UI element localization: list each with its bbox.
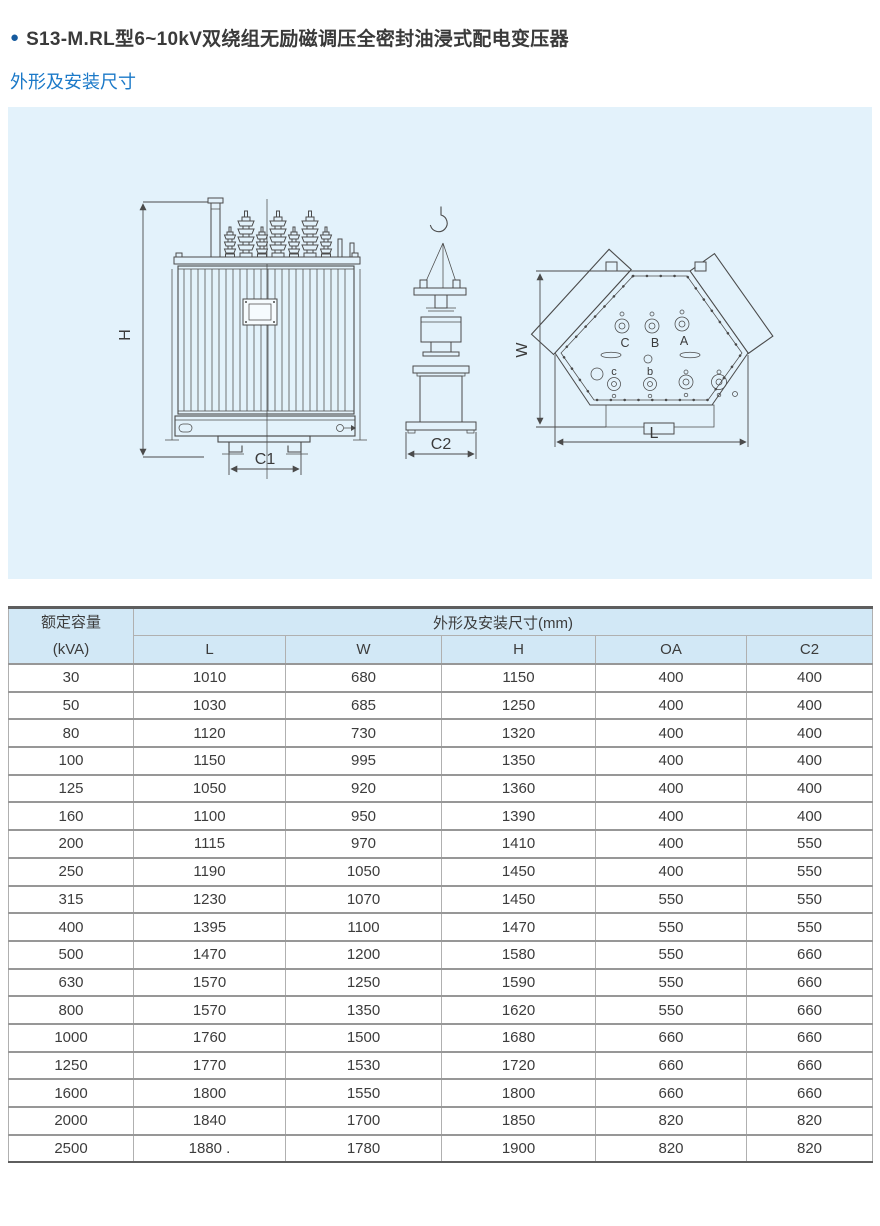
dimension-cell: 550 [596,886,747,914]
capacity-cell: 125 [9,775,134,803]
dimension-cell: 1150 [134,747,286,775]
dim-label-h: H [117,329,134,341]
dimension-cell: 1320 [442,719,596,747]
phase-label-b-lv: b [647,366,653,378]
col-header-c2: C2 [747,636,873,664]
table-row: 800157013501620550660 [9,996,873,1024]
dimension-cell: 820 [596,1107,747,1135]
table-row: 1600180015501800660660 [9,1079,873,1107]
table-row: 8011207301320400400 [9,719,873,747]
dimension-cell: 1030 [134,692,286,720]
dimension-cell: 400 [596,802,747,830]
table-row: 315123010701450550550 [9,886,873,914]
dimension-cell: 685 [286,692,442,720]
dimension-cell: 660 [596,1079,747,1107]
dimension-cell: 1050 [286,858,442,886]
nameplate [243,299,277,325]
table-row: 12510509201360400400 [9,775,873,803]
dimension-cell: 1720 [442,1052,596,1080]
dimension-cell: 1530 [286,1052,442,1080]
lifting-hook [431,207,448,232]
table-row: 2000184017001850820820 [9,1107,873,1135]
dimension-cell: 1350 [442,747,596,775]
capacity-header-line2: (kVA) [9,636,133,663]
table-row: 25001880 .17801900820820 [9,1135,873,1163]
dimension-cell: 970 [286,830,442,858]
dimension-cell: 1190 [134,858,286,886]
capacity-cell: 250 [9,858,134,886]
dimension-cell: 1880 . [134,1135,286,1163]
dimension-cell: 1840 [134,1107,286,1135]
dimension-cell: 820 [747,1135,873,1163]
dimension-cell: 820 [596,1135,747,1163]
table-row: 630157012501590550660 [9,969,873,997]
dimension-cell: 400 [596,692,747,720]
section-subtitle: 外形及安装尺寸 [10,68,880,94]
dimension-cell: 1770 [134,1052,286,1080]
dimension-cell: 660 [747,1024,873,1052]
dimension-cell: 995 [286,747,442,775]
table-row: 16011009501390400400 [9,802,873,830]
dim-label-w: W [514,342,531,358]
capacity-cell: 2500 [9,1135,134,1163]
capacity-cell: 1250 [9,1052,134,1080]
capacity-cell: 200 [9,830,134,858]
group-header: 外形及安装尺寸(mm) [134,608,873,636]
dimension-cell: 1580 [442,941,596,969]
capacity-cell: 160 [9,802,134,830]
table-body: 3010106801150400400501030685125040040080… [9,664,873,1162]
dimension-cell: 550 [596,913,747,941]
capacity-header: 额定容量 (kVA) [9,608,134,665]
dimension-cell: 400 [747,719,873,747]
dimension-cell: 400 [596,830,747,858]
side-view: C2 [406,207,476,459]
dimension-cell: 550 [747,886,873,914]
capacity-cell: 1600 [9,1079,134,1107]
dimension-cell: 550 [747,858,873,886]
capacity-cell: 30 [9,664,134,692]
dimension-cell: 660 [747,969,873,997]
dimension-cell: 1150 [442,664,596,692]
phase-label-c: C [620,336,629,350]
dimension-cell: 1760 [134,1024,286,1052]
dimension-cell: 1070 [286,886,442,914]
dimension-cell: 1590 [442,969,596,997]
dimension-cell: 1395 [134,913,286,941]
table-row: 1000176015001680660660 [9,1024,873,1052]
dimension-cell: 1780 [286,1135,442,1163]
dimension-cell: 1570 [134,996,286,1024]
dimension-cell: 1100 [134,802,286,830]
dimension-cell: 400 [596,858,747,886]
dimension-cell: 400 [596,719,747,747]
dimension-cell: 1100 [286,913,442,941]
dimension-cell: 1850 [442,1107,596,1135]
dimension-cell: 1550 [286,1079,442,1107]
table-row: 3010106801150400400 [9,664,873,692]
table-row: 5010306851250400400 [9,692,873,720]
col-header-oa: OA [596,636,747,664]
table-header: 额定容量 (kVA) 外形及安装尺寸(mm) L W H OA C2 [9,608,873,665]
dimension-cell: 660 [747,941,873,969]
table-row: 250119010501450400550 [9,858,873,886]
dimension-cell: 1250 [286,969,442,997]
dimension-cell: 1700 [286,1107,442,1135]
dimension-cell: 1360 [442,775,596,803]
dimension-cell: 1900 [442,1135,596,1163]
dimension-cell: 1410 [442,830,596,858]
table-row: 10011509951350400400 [9,747,873,775]
dimension-cell: 1470 [442,913,596,941]
dimension-cell: 660 [596,1024,747,1052]
dimension-cell: 730 [286,719,442,747]
capacity-cell: 630 [9,969,134,997]
dimension-cell: 400 [747,802,873,830]
col-header-h: H [442,636,596,664]
dimension-cell: 400 [596,775,747,803]
drawing-panel: H [8,107,872,579]
dimension-cell: 1390 [442,802,596,830]
capacity-header-line1: 额定容量 [9,609,133,636]
dimension-cell: 550 [747,913,873,941]
phase-label-c-lv: c [611,366,617,378]
dimension-cell: 1500 [286,1024,442,1052]
transformer-drawing: H [8,107,872,579]
dimension-cell: 660 [747,1079,873,1107]
page-title: ● S13-M.RL型6~10kV双绕组无励磁调压全密封油浸式配电变压器 [10,24,880,51]
dimension-cell: 550 [596,941,747,969]
dimension-cell: 950 [286,802,442,830]
col-header-w: W [286,636,442,664]
phase-label-a: A [680,334,689,348]
dimension-cell: 400 [747,775,873,803]
capacity-cell: 800 [9,996,134,1024]
phase-label-b: B [651,336,659,350]
capacity-cell: 50 [9,692,134,720]
dimension-cell: 1450 [442,886,596,914]
capacity-cell: 1000 [9,1024,134,1052]
capacity-cell: 80 [9,719,134,747]
dimension-cell: 1800 [134,1079,286,1107]
dim-label-l: L [650,425,659,442]
drain-valve [337,425,344,432]
dimension-cell: 1350 [286,996,442,1024]
dimension-cell: 660 [747,1052,873,1080]
top-view: C B A c b W L [514,249,773,447]
capacity-cell: 100 [9,747,134,775]
dimension-cell: 660 [596,1052,747,1080]
dimension-cell: 1050 [134,775,286,803]
table-row: 400139511001470550550 [9,913,873,941]
jack-pad [179,424,192,432]
dimension-cell: 1800 [442,1079,596,1107]
title-text: S13-M.RL型6~10kV双绕组无励磁调压全密封油浸式配电变压器 [26,24,569,51]
dimension-cell: 1680 [442,1024,596,1052]
bullet-icon: ● [10,30,19,45]
dimension-cell: 680 [286,664,442,692]
dimension-cell: 1230 [134,886,286,914]
dimension-cell: 920 [286,775,442,803]
capacity-cell: 2000 [9,1107,134,1135]
dimension-cell: 400 [747,664,873,692]
dimension-cell: 1120 [134,719,286,747]
dimension-cell: 1200 [286,941,442,969]
table-row: 500147012001580550660 [9,941,873,969]
table-row: 20011159701410400550 [9,830,873,858]
front-view: H [117,198,367,479]
dimension-cell: 1570 [134,969,286,997]
capacity-cell: 315 [9,886,134,914]
dimension-cell: 400 [596,747,747,775]
dimension-cell: 550 [596,996,747,1024]
col-header-l: L [134,636,286,664]
dimension-cell: 1010 [134,664,286,692]
capacity-cell: 500 [9,941,134,969]
dim-label-c2: C2 [431,436,452,453]
dimension-cell: 400 [747,747,873,775]
dimension-cell: 1450 [442,858,596,886]
dimension-cell: 820 [747,1107,873,1135]
dimension-cell: 550 [596,969,747,997]
dimension-cell: 660 [747,996,873,1024]
dimension-cell: 400 [747,692,873,720]
dimension-cell: 400 [596,664,747,692]
capacity-cell: 400 [9,913,134,941]
dimension-cell: 1115 [134,830,286,858]
dimensions-table: 额定容量 (kVA) 外形及安装尺寸(mm) L W H OA C2 30101… [8,606,873,1163]
dimension-cell: 550 [747,830,873,858]
dim-label-c1: C1 [255,451,276,468]
dimension-cell: 1470 [134,941,286,969]
dimension-cell: 1620 [442,996,596,1024]
dimension-cell: 1250 [442,692,596,720]
table-row: 1250177015301720660660 [9,1052,873,1080]
